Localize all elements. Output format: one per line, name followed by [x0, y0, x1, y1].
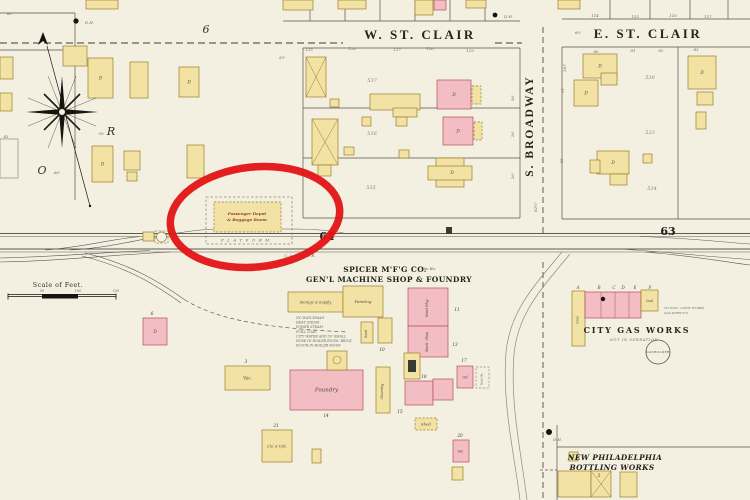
script-letter: O	[37, 164, 46, 177]
lot-number: 116	[669, 13, 677, 18]
building	[433, 379, 453, 400]
building-label: Cleaning	[380, 383, 384, 400]
building-label: Mach. Shop	[425, 331, 429, 353]
building	[0, 57, 13, 79]
cupola-icon	[333, 356, 341, 364]
measurement: 55'	[279, 55, 285, 60]
lot-number: 127	[393, 47, 401, 52]
building-label: D	[186, 80, 191, 85]
margin-note: TO ELEC. LIGHT WORKS	[664, 306, 704, 310]
fire-note-line: POWER STEAM	[295, 325, 323, 329]
parcel-number: 533	[645, 130, 655, 136]
building	[415, 0, 433, 15]
parcel-number: 536	[367, 131, 377, 137]
fire-note-line: NO WATCHMAN	[295, 316, 324, 320]
building	[127, 172, 137, 181]
building	[130, 62, 148, 98]
script-letter: R	[106, 125, 115, 138]
building	[318, 165, 331, 176]
depot-label-line1: Passenger Depot	[227, 211, 267, 216]
building	[696, 112, 706, 129]
building-label: D	[152, 329, 157, 334]
building	[452, 467, 463, 480]
building	[610, 174, 627, 185]
gas-building-letter: A	[575, 285, 579, 290]
gasholder-label: GASHOLDER	[646, 350, 670, 354]
building-number: 13	[452, 342, 458, 347]
building	[312, 449, 321, 463]
measurement: 367	[562, 64, 567, 72]
building-label: D	[699, 70, 704, 75]
block-number-63: 63	[660, 225, 675, 238]
porch	[472, 86, 481, 104]
building	[378, 318, 392, 343]
bottling-works	[558, 471, 591, 497]
platform-label: PLATFORM	[220, 238, 273, 243]
building	[124, 151, 140, 170]
street-label-s-broadway: S. BROADWAY	[524, 75, 536, 176]
gas-works-status: NOT IN OPERATION	[609, 338, 659, 342]
building-label: Wood Wkg.	[425, 299, 429, 318]
lot-number: 126	[348, 46, 356, 51]
fire-note-line: CITY WATER AND 50' SMALL	[296, 334, 346, 338]
building	[0, 93, 12, 111]
street-label-e-st-clair: E. ST. CLAIR	[594, 26, 703, 41]
building	[396, 117, 407, 126]
hydrant-label: D.H.	[503, 14, 513, 19]
building-number: 6	[151, 311, 154, 316]
building-label: D	[100, 162, 105, 167]
watch-box	[446, 227, 452, 234]
sanborn-map-screenshot: DDDDDDDDDDDVac.Clo. & Uph.Storage & Supp…	[0, 0, 750, 500]
building-label: D	[98, 76, 103, 81]
building-label: Shed	[421, 422, 432, 427]
measurement: 26'	[510, 173, 515, 180]
track-shed	[143, 232, 154, 241]
measurement: 82½'	[533, 202, 538, 212]
measurement: 59	[98, 131, 104, 136]
building-label: Foundry	[314, 388, 339, 394]
building	[601, 73, 617, 85]
gas-works-title: CITY GAS WORKS	[584, 325, 691, 335]
measurement: 60'	[575, 30, 581, 35]
fire-note-line: HOSE IN BOILER ROOM, BRICK	[295, 339, 352, 343]
scale-bar-segment	[42, 294, 78, 299]
lot-number: 115	[631, 14, 639, 19]
building-number: 15	[397, 409, 403, 414]
hydrant-label: D.H.	[552, 437, 562, 442]
building	[283, 0, 313, 10]
measurement: 60'	[7, 11, 13, 16]
scale-tick: 150	[113, 289, 120, 293]
building-label: D	[583, 91, 588, 96]
measurement: 66'	[54, 170, 60, 175]
gas-building-letter: B	[596, 285, 600, 290]
lot-number: 114	[591, 13, 599, 18]
parcel-number: 537	[367, 78, 377, 84]
fire-note-line: FLOOR IN BOILER ROOM	[295, 344, 341, 348]
building-number: 20	[456, 433, 463, 438]
bottling-title-line2: BOTTLING WORKS	[568, 463, 654, 472]
compass-hub	[59, 109, 66, 116]
hydrant-dot	[546, 429, 552, 435]
hydrant-dot	[73, 18, 78, 23]
needle-tip	[89, 205, 91, 207]
scale-tick: 100	[75, 289, 82, 293]
hydrant-dot	[493, 13, 498, 18]
building-label: D	[597, 64, 602, 69]
building-number: 10	[379, 347, 385, 352]
building-label: Coal	[576, 316, 580, 323]
building-number: 2	[597, 473, 601, 478]
building-label: Vac.	[243, 376, 252, 381]
gas-building-letter: E	[632, 285, 636, 290]
building-label: Coal	[646, 299, 653, 303]
building-number: 21	[272, 423, 278, 428]
gas-building-letter: D	[620, 285, 625, 290]
lot-number: 129	[466, 48, 474, 53]
retort-dot	[601, 297, 605, 301]
parcel-number: 535	[366, 185, 376, 191]
building	[370, 94, 420, 110]
lot-number: 117	[704, 14, 712, 19]
spicer-title-line2: GEN'L MACHINE SHOP & FOUNDRY	[306, 275, 472, 284]
lot-number: 82	[658, 48, 664, 53]
bottling-title-line1: NEW PHILADELPHIA	[567, 453, 662, 462]
building-label: Clo. & Uph.	[267, 445, 287, 449]
fire-note-line: HEAT STEAM	[295, 321, 320, 325]
building-number: 17	[461, 358, 467, 363]
spicer-title-line1: SPICER M'F'G CO.	[343, 265, 426, 274]
script-letter: 6	[203, 23, 210, 36]
lot-number: 81	[630, 48, 635, 53]
hydrant-label: D.H.	[84, 20, 94, 25]
building	[338, 0, 366, 9]
building	[590, 160, 600, 173]
building-label: Oil	[462, 376, 467, 380]
measurement: 55	[559, 158, 564, 164]
lot-number: 83	[693, 47, 699, 52]
scale-title: Scale of Feet.	[33, 282, 83, 289]
lot-number: 128	[426, 46, 434, 51]
building-label: D	[455, 129, 460, 134]
building-number: 18	[421, 374, 427, 379]
building	[393, 108, 417, 117]
map-canvas: DDDDDDDDDDDVac.Clo. & Uph.Storage & Supp…	[0, 0, 750, 500]
measurement: 26'	[510, 131, 515, 138]
building	[330, 99, 339, 107]
building-label: Storage & Supply	[300, 301, 333, 305]
building	[466, 0, 486, 8]
furnace-mark	[408, 360, 416, 372]
building	[697, 92, 713, 105]
margin-note: GAS DIRECT'N.	[664, 311, 689, 315]
building-label: D	[449, 170, 454, 175]
building-label: D	[451, 92, 456, 97]
building-number: 3	[245, 359, 248, 364]
porch	[474, 122, 482, 140]
building	[643, 154, 652, 163]
street-label-w-st-clair: W. ST. CLAIR	[364, 27, 476, 42]
building-label: D	[610, 160, 615, 165]
lot-number: 80	[593, 49, 599, 54]
parcel-number: 538	[645, 75, 655, 81]
building	[399, 150, 409, 158]
fire-note-line: FUEL COAL	[295, 330, 317, 334]
measurement: 51'	[560, 87, 565, 93]
building-label: Tank Ho.	[480, 373, 484, 386]
building	[63, 46, 87, 66]
building	[405, 381, 433, 405]
measurement: 43	[2, 134, 9, 139]
depot-label-line2: & Baggage Room	[227, 217, 267, 222]
building	[187, 145, 204, 178]
building-label: Vac.	[458, 450, 465, 454]
building	[86, 0, 118, 9]
building	[620, 472, 637, 497]
building	[558, 0, 580, 9]
building-number: 11	[454, 307, 459, 312]
gas-works-retort	[585, 292, 641, 318]
lot-number: 125	[305, 47, 313, 52]
building-number: 14	[323, 413, 329, 418]
building	[362, 117, 371, 126]
building	[344, 147, 354, 155]
building	[434, 0, 446, 10]
parcel-number: 534	[647, 186, 657, 192]
water-tank-icon	[157, 232, 167, 242]
building-label: Painting	[354, 299, 372, 304]
building-label: Sand	[364, 330, 368, 338]
measurement: 26'	[510, 95, 515, 102]
